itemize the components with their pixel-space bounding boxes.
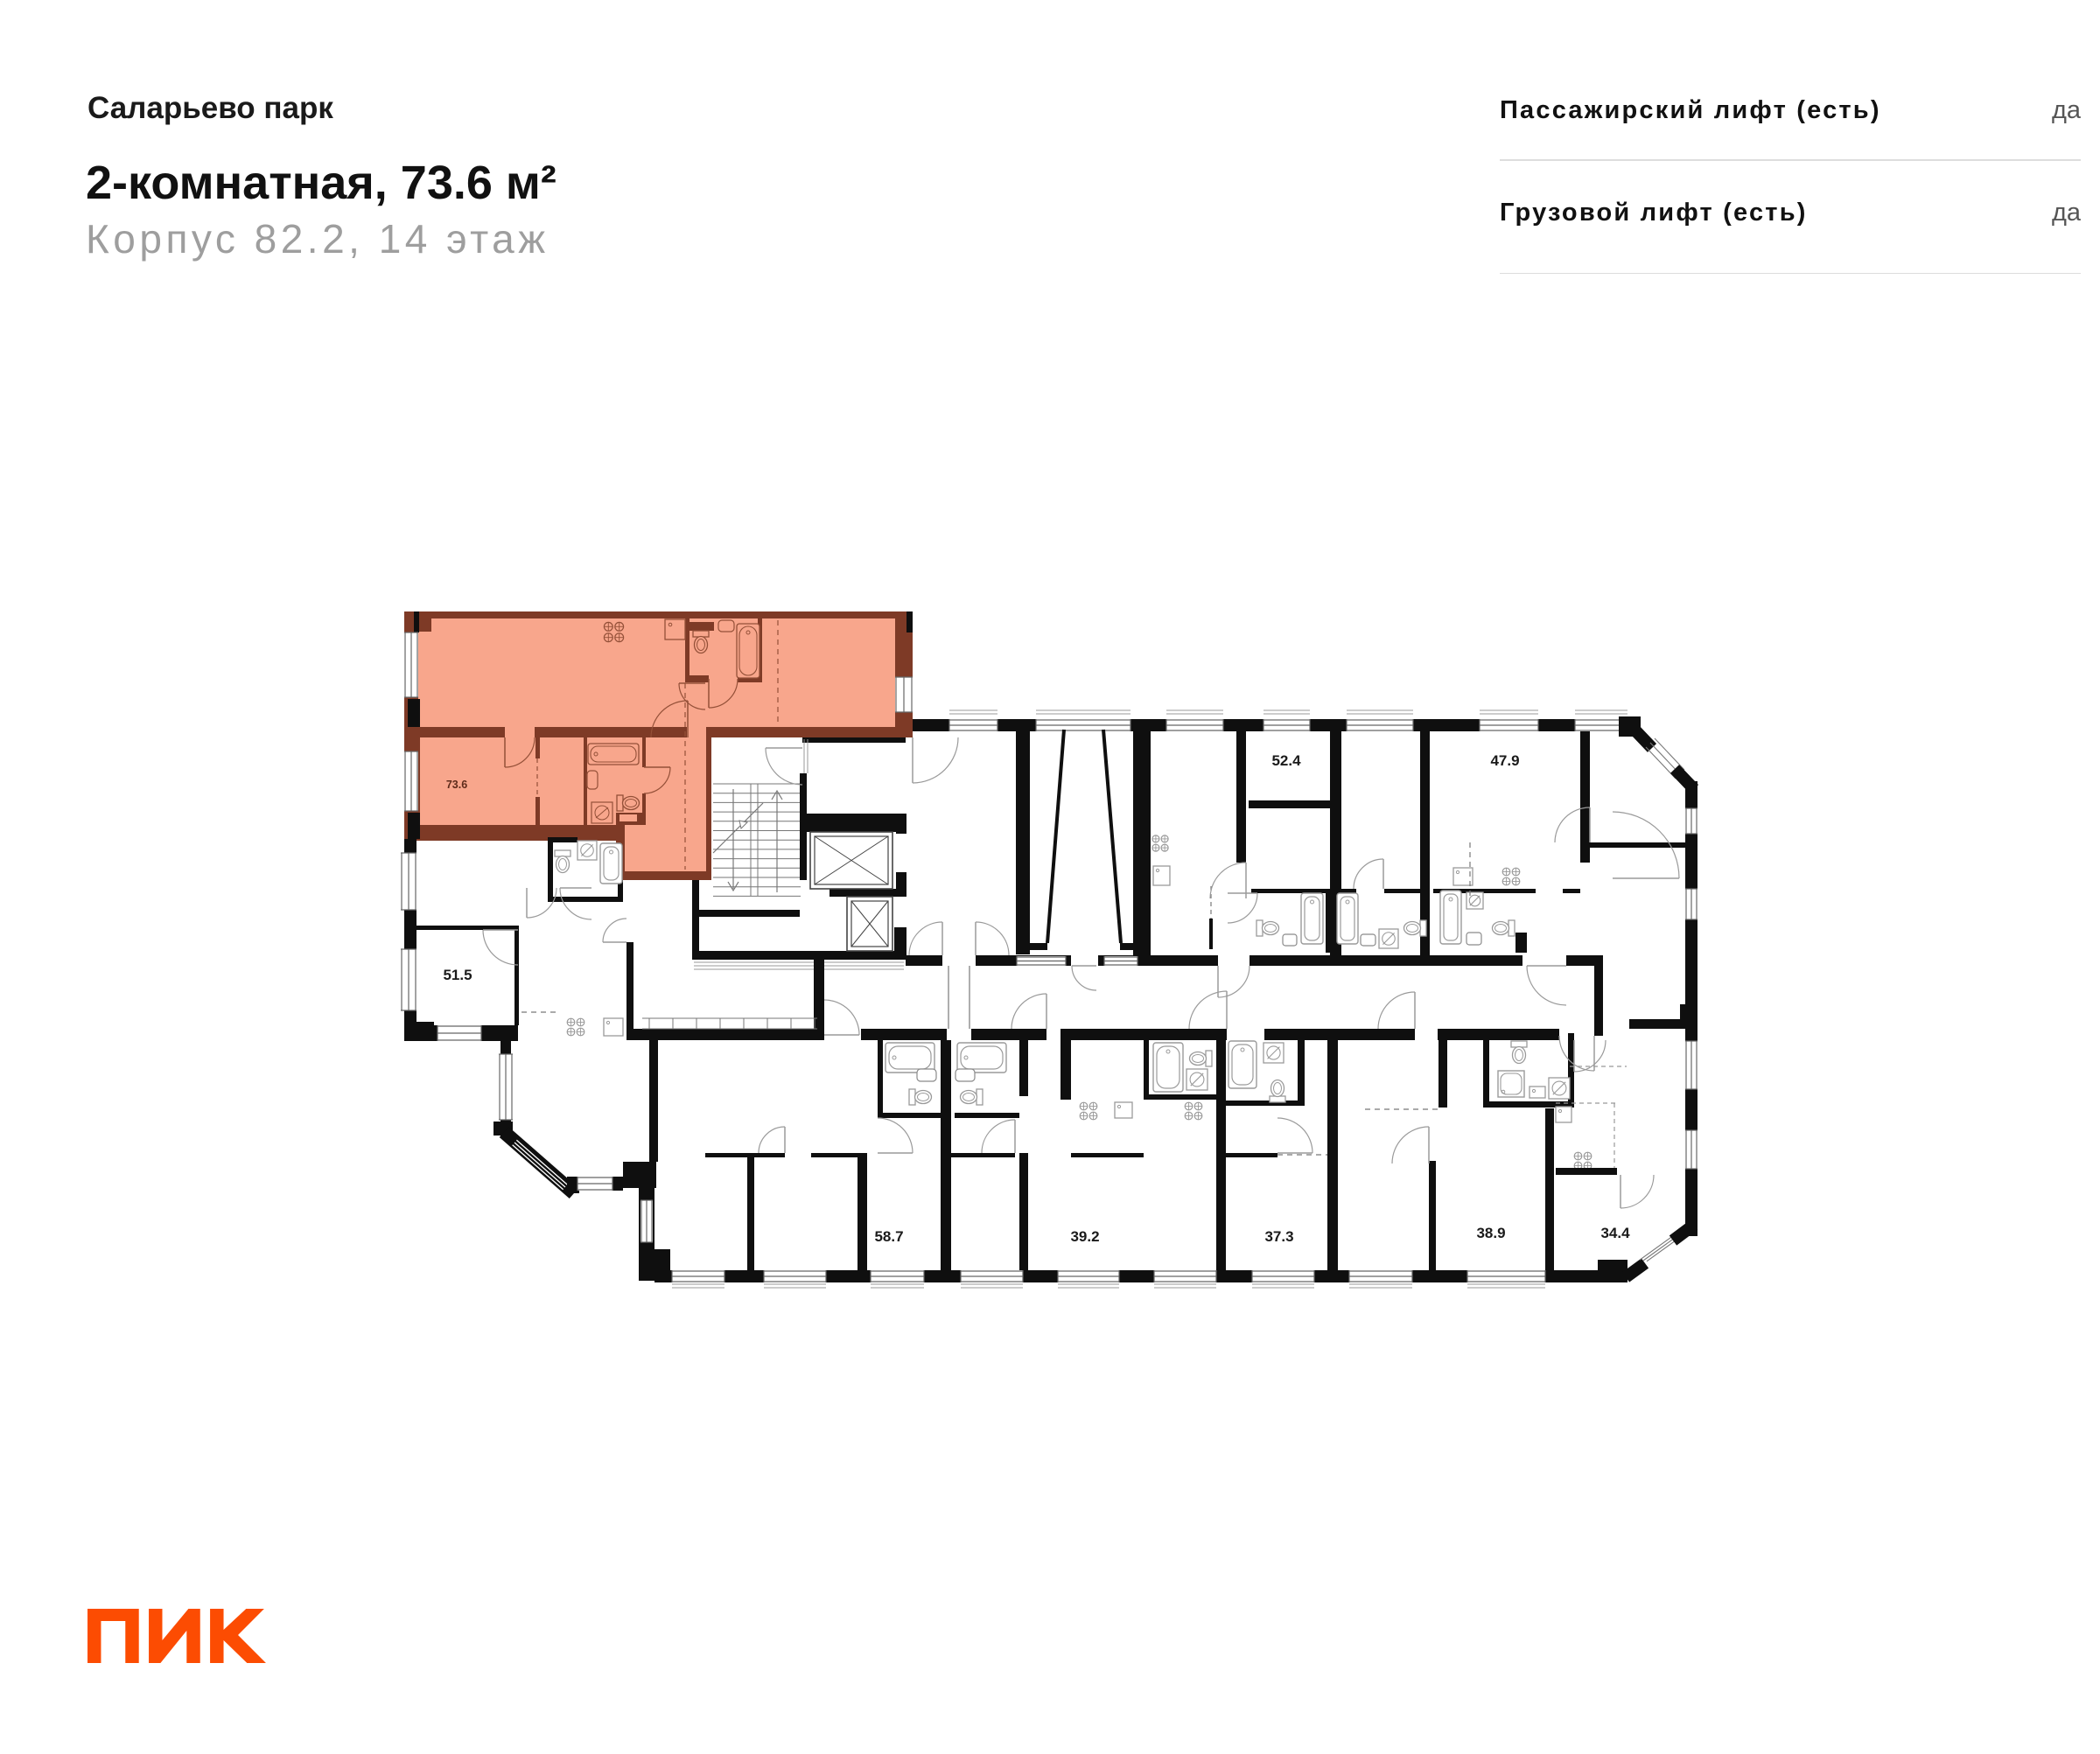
svg-text:37.3: 37.3 [1264, 1228, 1293, 1245]
svg-text:38.9: 38.9 [1476, 1225, 1505, 1241]
svg-text:34.4: 34.4 [1600, 1225, 1630, 1241]
svg-text:73.6: 73.6 [446, 779, 467, 791]
svg-text:58.7: 58.7 [874, 1228, 903, 1245]
svg-text:52.4: 52.4 [1271, 752, 1301, 769]
svg-text:51.5: 51.5 [443, 967, 472, 983]
svg-text:47.9: 47.9 [1490, 752, 1519, 769]
svg-text:39.2: 39.2 [1070, 1228, 1099, 1245]
